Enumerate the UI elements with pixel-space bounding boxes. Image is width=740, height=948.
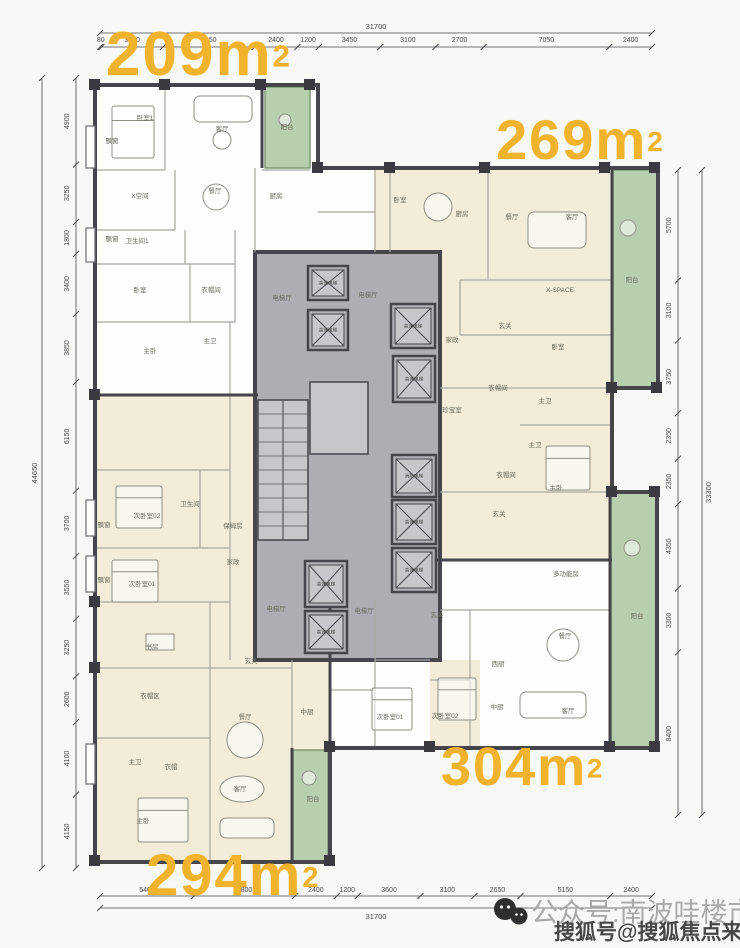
room-label: 电梯厅 <box>272 293 292 302</box>
svg-text:2700: 2700 <box>452 37 468 44</box>
room-label: 餐厅 <box>559 631 573 640</box>
room-label: 客厅 <box>562 706 576 715</box>
svg-text:3700: 3700 <box>64 515 71 531</box>
room-label: 客厅 <box>234 784 248 793</box>
svg-text:31700: 31700 <box>366 912 387 921</box>
room-label: 玄关 <box>431 610 445 619</box>
svg-text:4100: 4100 <box>64 751 71 767</box>
svg-text:6150: 6150 <box>64 428 71 444</box>
svg-text:3300: 3300 <box>666 612 673 628</box>
elevator-label: 高速电梯 <box>319 280 338 287</box>
svg-text:2400: 2400 <box>623 37 639 44</box>
dimension-chain-right: 5700310037502350235043503300840033300 <box>666 167 713 818</box>
room-label: 厨房 <box>456 209 469 218</box>
room-label: 家政 <box>446 335 460 344</box>
room-label: 阳台 <box>626 275 639 284</box>
elevator-label: 高速电梯 <box>405 519 424 526</box>
room-label: 餐厅 <box>239 712 253 721</box>
svg-text:3600: 3600 <box>381 887 397 894</box>
room-label: 玄关 <box>493 509 507 518</box>
room-label: 卧室 <box>552 342 566 351</box>
svg-text:7050: 7050 <box>539 37 555 44</box>
room-label: 飘窗 <box>98 575 111 584</box>
room-label: 中厨 <box>491 702 505 711</box>
room-label: 餐厅 <box>209 186 223 195</box>
svg-text:5700: 5700 <box>666 217 673 233</box>
room-label: 电梯厅 <box>358 290 378 299</box>
room-label: 保姆房 <box>223 521 243 530</box>
room-label: 卧室1 <box>137 113 154 122</box>
room-label: 主卧 <box>144 346 158 355</box>
room-label: 次卧室02 <box>134 511 161 520</box>
svg-text:3850: 3850 <box>64 340 71 356</box>
svg-text:3250: 3250 <box>64 185 71 201</box>
room-label: 阳台 <box>631 611 644 620</box>
elevator-label: 消防电梯 <box>405 473 424 480</box>
svg-text:3400: 3400 <box>64 276 71 292</box>
room-label: 主卫 <box>529 440 543 449</box>
elevator-label: 高速电梯 <box>317 581 336 588</box>
room-label: X-SPACE <box>546 287 575 294</box>
room-label: 珍宝室 <box>442 405 462 414</box>
room-label: 中厨 <box>301 707 315 716</box>
svg-text:3550: 3550 <box>64 580 71 596</box>
svg-text:2350: 2350 <box>666 473 673 489</box>
watermark-sohu-text: 搜狐号@搜狐焦点来宾站 <box>554 916 740 946</box>
room-label: 卫生间 <box>180 499 200 508</box>
room-label: 次卧室01 <box>129 579 156 588</box>
room-label: 主卧 <box>550 483 564 492</box>
svg-text:3100: 3100 <box>440 887 456 894</box>
svg-text:3100: 3100 <box>400 37 416 44</box>
svg-text:2600: 2600 <box>64 691 71 707</box>
room-label: 飘窗 <box>106 136 119 145</box>
area-label-209: 209m2 <box>106 24 290 86</box>
room-label: 多功能房 <box>553 569 579 578</box>
svg-text:3450: 3450 <box>342 37 358 44</box>
area-label-294: 294m2 <box>146 847 318 905</box>
room-label: 主卫 <box>129 757 143 766</box>
room-label: 次卧室01 <box>377 712 404 721</box>
room-label: 衣帽间 <box>201 285 221 294</box>
area-label-304: 304m2 <box>441 740 602 794</box>
svg-text:2350: 2350 <box>666 428 673 444</box>
svg-text:1200: 1200 <box>300 37 316 44</box>
svg-text:1800: 1800 <box>64 230 71 246</box>
room-label: 卧室 <box>394 195 408 204</box>
room-label: 客厅 <box>216 124 230 133</box>
room-label: 家政 <box>227 557 241 566</box>
room-label: 阳台 <box>281 122 294 131</box>
room-label: 西厨 <box>492 660 506 668</box>
room-label: 玄关 <box>499 321 513 330</box>
room-label: 电梯厅 <box>354 606 374 615</box>
svg-text:31700: 31700 <box>366 22 387 31</box>
wechat-icon <box>492 897 530 927</box>
area-label-269: 269m2 <box>496 112 663 168</box>
room-label: 客厅 <box>566 212 580 221</box>
elevator-label: 高速电梯 <box>317 629 336 636</box>
elevator-label: 高速电梯 <box>319 327 338 334</box>
dimension-chain-left: 4900325018003400385061503700355032502600… <box>30 75 79 871</box>
room-label: 餐厅 <box>506 212 520 221</box>
room-label: 衣帽 <box>165 762 179 771</box>
svg-text:3250: 3250 <box>64 640 71 656</box>
svg-text:4150: 4150 <box>64 823 71 839</box>
room-label: 衣帽区 <box>140 691 160 700</box>
svg-text:2650: 2650 <box>490 887 506 894</box>
svg-text:8400: 8400 <box>666 726 673 742</box>
room-label: 衣帽间 <box>488 383 508 392</box>
room-label: 卧室 <box>134 285 148 294</box>
room-label: X空间 <box>131 191 148 200</box>
svg-text:80: 80 <box>97 37 105 44</box>
elevator-label: 高速电梯 <box>404 323 423 330</box>
room-label: 飘窗 <box>98 520 111 529</box>
room-label: 电梯厅 <box>266 604 286 613</box>
svg-text:3100: 3100 <box>666 303 673 319</box>
elevator-label: 高速电梯 <box>405 567 424 574</box>
svg-text:4900: 4900 <box>64 113 71 129</box>
room-label: 书房 <box>146 642 159 651</box>
svg-text:3750: 3750 <box>666 369 673 385</box>
svg-text:4350: 4350 <box>666 538 673 554</box>
floorplan-page: 高速电梯高速电梯高速电梯高速电梯消防电梯高速电梯高速电梯高速电梯高速电梯飘窗卧室… <box>0 0 740 948</box>
room-label: 玄关 <box>245 656 259 665</box>
room-label: 阳台 <box>307 794 320 803</box>
room-label: 主卧 <box>137 816 151 825</box>
stairs <box>258 400 308 540</box>
svg-text:1200: 1200 <box>339 887 355 894</box>
room-label: 飘窗 <box>106 234 119 243</box>
room-label: 次卧室02 <box>432 711 459 720</box>
room-label: 主卫 <box>539 396 553 405</box>
room-label: 主卫 <box>204 336 218 345</box>
room-label: 卫生间1 <box>125 236 149 245</box>
svg-text:44650: 44650 <box>30 463 39 484</box>
svg-text:33300: 33300 <box>704 482 713 503</box>
elevator-label: 高速电梯 <box>405 376 424 383</box>
room-label: 厨房 <box>270 191 283 200</box>
room-label: 衣帽间 <box>496 470 516 479</box>
